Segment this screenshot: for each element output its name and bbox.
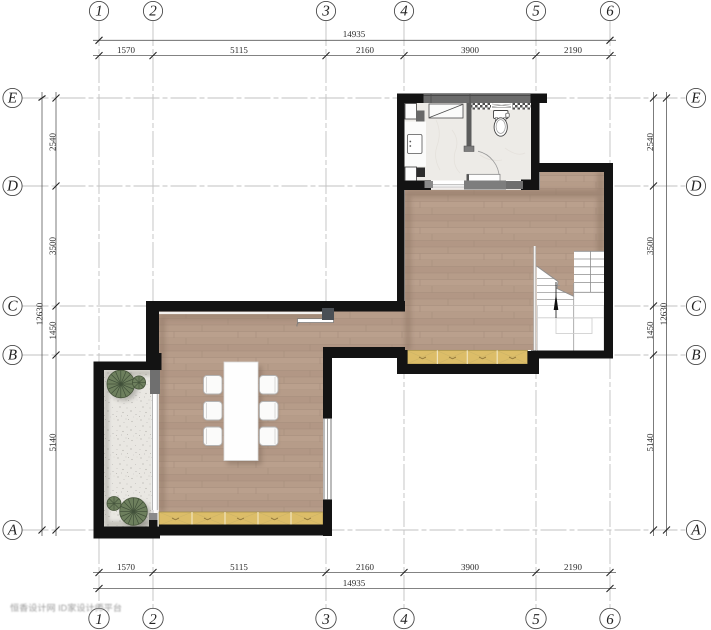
svg-text:恒香设计网 ID家设计师平台: 恒香设计网 ID家设计师平台 — [10, 603, 122, 613]
svg-text:2190: 2190 — [564, 45, 583, 55]
svg-text:2540: 2540 — [48, 133, 58, 152]
svg-text:5: 5 — [532, 612, 540, 628]
svg-text:12630: 12630 — [659, 302, 669, 325]
svg-text:4: 4 — [400, 4, 408, 20]
svg-text:3: 3 — [321, 4, 330, 20]
svg-text:2: 2 — [149, 612, 157, 628]
svg-text:1450: 1450 — [645, 321, 655, 340]
svg-text:14935: 14935 — [343, 578, 366, 588]
svg-text:2540: 2540 — [645, 133, 655, 152]
svg-text:3900: 3900 — [461, 45, 480, 55]
svg-text:E: E — [690, 91, 700, 107]
svg-text:3: 3 — [321, 612, 330, 628]
svg-text:5: 5 — [532, 4, 540, 20]
svg-text:5115: 5115 — [230, 45, 248, 55]
svg-text:E: E — [7, 91, 17, 107]
svg-text:1450: 1450 — [48, 321, 58, 340]
svg-text:A: A — [7, 523, 18, 539]
svg-text:B: B — [8, 348, 17, 364]
svg-text:3500: 3500 — [48, 237, 58, 256]
svg-text:1: 1 — [95, 612, 103, 628]
svg-text:6: 6 — [606, 4, 614, 20]
svg-text:C: C — [691, 299, 702, 315]
svg-text:5115: 5115 — [230, 562, 248, 572]
svg-text:D: D — [6, 179, 18, 195]
svg-text:2190: 2190 — [564, 562, 583, 572]
svg-text:1570: 1570 — [117, 562, 136, 572]
svg-text:B: B — [691, 348, 700, 364]
svg-text:C: C — [7, 299, 18, 315]
svg-text:3500: 3500 — [645, 237, 655, 256]
svg-text:1570: 1570 — [117, 45, 136, 55]
svg-text:4: 4 — [400, 612, 408, 628]
svg-text:2: 2 — [149, 4, 157, 20]
svg-text:A: A — [690, 523, 701, 539]
svg-text:14935: 14935 — [343, 29, 366, 39]
svg-text:12630: 12630 — [35, 302, 45, 325]
svg-text:3900: 3900 — [461, 562, 480, 572]
svg-text:2160: 2160 — [356, 562, 375, 572]
svg-text:2160: 2160 — [356, 45, 375, 55]
svg-text:5140: 5140 — [48, 433, 58, 452]
svg-text:5140: 5140 — [645, 433, 655, 452]
svg-text:1: 1 — [95, 4, 103, 20]
svg-text:D: D — [690, 179, 702, 195]
svg-text:6: 6 — [606, 612, 614, 628]
